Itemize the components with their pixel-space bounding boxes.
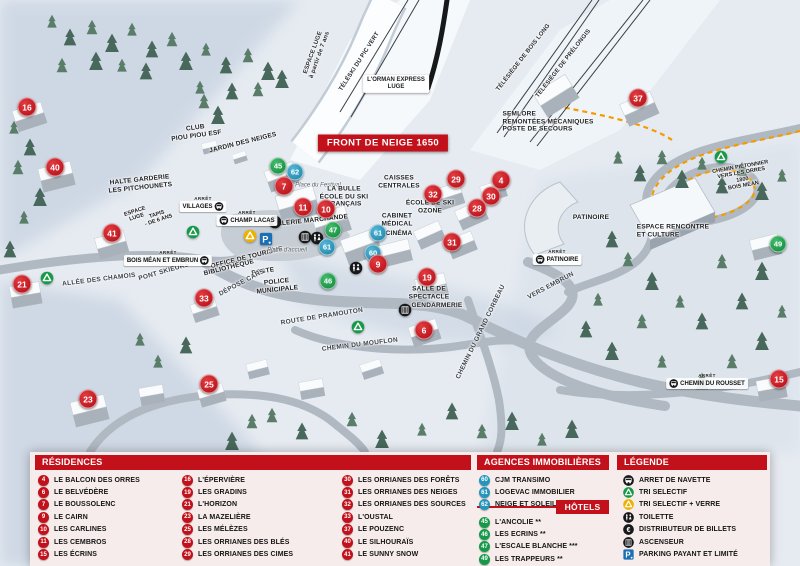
legend-number-badge: 41: [342, 549, 353, 560]
legend-number-badge: 31: [342, 487, 353, 498]
legend-number-badge: 16: [182, 475, 193, 486]
hotel-row: 45L'ANCOLIE **: [479, 516, 578, 528]
legende-label: TOILETTE: [639, 514, 674, 521]
residence-row: 37LE POUZENC: [342, 524, 466, 536]
legend-number-badge: 61: [479, 487, 490, 498]
residence-label: LE SUNNY SNOW: [358, 551, 418, 558]
toilette-icon: [623, 512, 634, 523]
residence-row: 21L'HORIZON: [182, 499, 293, 511]
legende-row: ARRET DE NAVETTE: [623, 474, 738, 486]
hotel-row: 47L'ESCALE BLANCHE ***: [479, 541, 578, 553]
legend-number-badge: 46: [479, 529, 490, 540]
legend-number-badge: 6: [38, 487, 49, 498]
residence-label: LE BALCON DES ORRES: [54, 477, 140, 484]
legend-number-badge: 9: [38, 512, 49, 523]
residence-label: LES ORRIANES DES NEIGES: [358, 489, 458, 496]
legend-number-badge: 62: [479, 499, 490, 510]
residence-label: LES ÉCRINS: [54, 551, 97, 558]
tri-icon: [623, 487, 634, 498]
agences-header: AGENCES IMMOBILIÈRES: [477, 455, 609, 470]
residence-row: 28LES ORRIANES DES BLÉS: [182, 536, 293, 548]
residence-label: L'OUSTAL: [358, 514, 393, 521]
residence-row: 10LES CARLINES: [38, 524, 140, 536]
resort-map-page: TÉLÉSKI DU PIC VERTL'ORMAN EXPRESS LUGET…: [0, 0, 800, 566]
euro-icon: €: [623, 524, 634, 535]
svg-text:€: €: [627, 527, 631, 534]
residence-row: 11LES CEMBROS: [38, 536, 140, 548]
legend-number-badge: 19: [182, 487, 193, 498]
residence-label: LE POUZENC: [358, 526, 404, 533]
legende-label: DISTRIBUTEUR DE BILLETS: [639, 526, 736, 533]
legend-number-badge: 10: [38, 524, 49, 535]
legende-column: ARRET DE NAVETTETRI SELECTIFTRI SELECTIF…: [623, 474, 738, 561]
legend-number-badge: 15: [38, 549, 49, 560]
residence-row: 30LES ORRIANES DES FORÊTS: [342, 474, 466, 486]
hotel-label: L'ANCOLIE **: [495, 519, 541, 526]
residence-label: LE SILHOURAÏS: [358, 539, 413, 546]
residence-label: LES ORRIANES DES BLÉS: [198, 539, 290, 546]
legend-panel: RÉSIDENCES AGENCES IMMOBILIÈRES LÉGENDE …: [30, 452, 770, 566]
legend-number-badge: 30: [342, 475, 353, 486]
residence-label: LES CEMBROS: [54, 539, 106, 546]
legende-label: TRI SELECTIF + VERRE: [639, 501, 720, 508]
legend-number-badge: 28: [182, 537, 193, 548]
residence-row: 25LES MÉLÈZES: [182, 524, 293, 536]
legende-label: ARRET DE NAVETTE: [639, 477, 710, 484]
residence-row: 40LE SILHOURAÏS: [342, 536, 466, 548]
legende-label: ASCENSEUR: [639, 539, 684, 546]
legende-row: ASCENSEUR: [623, 536, 738, 548]
svg-text:P: P: [625, 550, 630, 559]
legende-label: TRI SELECTIF: [639, 489, 687, 496]
residence-row: 31LES ORRIANES DES NEIGES: [342, 486, 466, 498]
residence-row: 29LES ORRIANES DES CIMES: [182, 548, 293, 560]
legend-number-badge: 32: [342, 499, 353, 510]
residence-label: LES MÉLÈZES: [198, 526, 248, 533]
parking-icon: P: [623, 549, 634, 560]
legend-number-badge: 47: [479, 541, 490, 552]
hotels-column: 45L'ANCOLIE **46LES ECRINS **47L'ESCALE …: [479, 516, 578, 566]
residence-label: L'ÉPERVIÈRE: [198, 477, 245, 484]
residence-row: 6LE BELVÉDÈRE: [38, 486, 140, 498]
legende-header: LÉGENDE: [617, 455, 767, 470]
residence-label: LES CARLINES: [54, 526, 107, 533]
residence-label: LES ORRIANES DES FORÊTS: [358, 477, 459, 484]
hotel-row: 46LES ECRINS **: [479, 528, 578, 540]
agence-row: 60CJM TRANSIMO: [479, 474, 575, 486]
residence-row: 16L'ÉPERVIÈRE: [182, 474, 293, 486]
legend-number-badge: 45: [479, 517, 490, 528]
legende-row: €DISTRIBUTEUR DE BILLETS: [623, 524, 738, 536]
agence-label: CJM TRANSIMO: [495, 477, 550, 484]
residences-column-2: 16L'ÉPERVIÈRE19LES GRADINS21L'HORIZON23L…: [182, 474, 293, 561]
ascenseur-icon: [623, 537, 634, 548]
legend-number-badge: 7: [38, 499, 49, 510]
residence-label: LE BELVÉDÈRE: [54, 489, 108, 496]
residence-row: 23LA MAZELIÈRE: [182, 511, 293, 523]
residences-column-1: 4LE BALCON DES ORRES6LE BELVÉDÈRE7LE BOU…: [38, 474, 140, 561]
residence-label: LES ORRIANES DES CIMES: [198, 551, 293, 558]
legende-row: TRI SELECTIF + VERRE: [623, 499, 738, 511]
legend-number-badge: 4: [38, 475, 49, 486]
residence-row: 19LES GRADINS: [182, 486, 293, 498]
residence-label: L'HORIZON: [198, 501, 237, 508]
residence-row: 41LE SUNNY SNOW: [342, 548, 466, 560]
residence-label: LES ORRIANES DES SOURCES: [358, 501, 466, 508]
legend-number-badge: 11: [38, 537, 49, 548]
agence-label: NEIGE ET SOLEIL: [495, 501, 556, 508]
legende-label: PARKING PAYANT ET LIMITÉ: [639, 551, 738, 558]
legend-number-badge: 40: [342, 537, 353, 548]
legende-row: TRI SELECTIF: [623, 486, 738, 498]
legend-number-badge: 21: [182, 499, 193, 510]
hotel-label: LES TRAPPEURS **: [495, 556, 563, 563]
hotels-header: HÔTELS: [556, 500, 609, 514]
hotel-row: 49LES TRAPPEURS **: [479, 553, 578, 565]
residence-row: 7LE BOUSSOLENC: [38, 499, 140, 511]
legend-number-badge: 49: [479, 554, 490, 565]
residence-row: 4LE BALCON DES ORRES: [38, 474, 140, 486]
legend-number-badge: 60: [479, 475, 490, 486]
tri-verre-icon: [623, 499, 634, 510]
hotel-label: LES ECRINS **: [495, 531, 546, 538]
agence-row: 61LOGEVAC IMMOBILIER: [479, 486, 575, 498]
residence-label: LE BOUSSOLENC: [54, 501, 116, 508]
residence-row: 9LE CAIRN: [38, 511, 140, 523]
agence-label: LOGEVAC IMMOBILIER: [495, 489, 575, 496]
residence-label: LE CAIRN: [54, 514, 88, 521]
legend-number-badge: 33: [342, 512, 353, 523]
legende-row: PPARKING PAYANT ET LIMITÉ: [623, 548, 738, 560]
legend-number-badge: 29: [182, 549, 193, 560]
residence-label: LA MAZELIÈRE: [198, 514, 251, 521]
residences-header: RÉSIDENCES: [35, 455, 471, 470]
bus-icon: [623, 475, 634, 486]
residences-column-3: 30LES ORRIANES DES FORÊTS31LES ORRIANES …: [342, 474, 466, 561]
residence-row: 15LES ÉCRINS: [38, 548, 140, 560]
hotel-label: L'ESCALE BLANCHE ***: [495, 543, 578, 550]
legend-number-badge: 37: [342, 524, 353, 535]
legende-row: TOILETTE: [623, 511, 738, 523]
residence-label: LES GRADINS: [198, 489, 247, 496]
residence-row: 33L'OUSTAL: [342, 511, 466, 523]
residence-row: 32LES ORRIANES DES SOURCES: [342, 499, 466, 511]
front-de-neige-banner: FRONT DE NEIGE 1650: [318, 135, 448, 152]
legend-number-badge: 23: [182, 512, 193, 523]
legend-number-badge: 25: [182, 524, 193, 535]
